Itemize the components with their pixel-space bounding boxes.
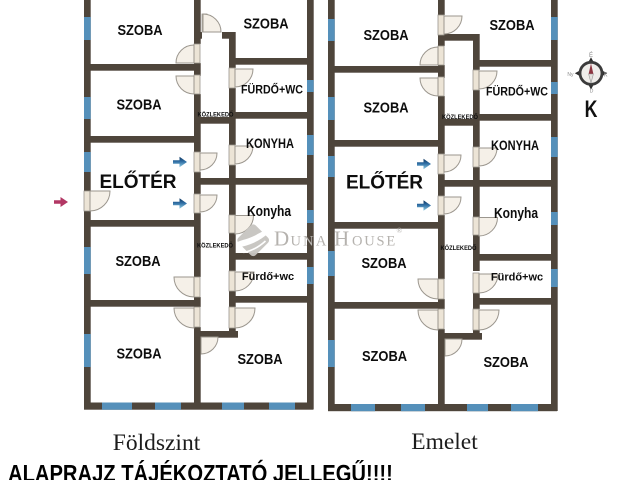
svg-text:ALAPRAJZ TÁJÉKOZTATÓ JELLEGŰ!!: ALAPRAJZ TÁJÉKOZTATÓ JELLEGŰ!!!!	[8, 460, 393, 480]
svg-text:SZOBA: SZOBA	[363, 26, 408, 43]
svg-text:ELŐTÉR: ELŐTÉR	[99, 171, 176, 193]
svg-text:ELŐTÉR: ELŐTÉR	[346, 172, 423, 194]
svg-text:SZOBA: SZOBA	[243, 15, 288, 32]
svg-text:SZOBA: SZOBA	[116, 345, 161, 362]
svg-text:KÖZLEKEDŐ: KÖZLEKEDŐ	[198, 111, 234, 118]
svg-text:Konyha: Konyha	[494, 205, 539, 221]
svg-text:KONYHA: KONYHA	[246, 136, 294, 152]
svg-text:É: É	[589, 52, 593, 59]
svg-text:FÜRDŐ+WC: FÜRDŐ+WC	[241, 83, 303, 96]
svg-text:SZOBA: SZOBA	[362, 347, 407, 364]
svg-text:H: H	[334, 227, 349, 251]
svg-text:KÖZLEKEDŐ: KÖZLEKEDŐ	[197, 242, 233, 249]
svg-text:SZOBA: SZOBA	[116, 96, 161, 113]
svg-text:Ny: Ny	[567, 72, 574, 78]
svg-text:KÖZLEKEDŐ: KÖZLEKEDŐ	[442, 114, 478, 121]
svg-text:Emelet: Emelet	[411, 429, 478, 455]
svg-text:KÖZLEKEDŐ: KÖZLEKEDŐ	[441, 245, 477, 252]
svg-text:SZOBA: SZOBA	[483, 353, 528, 370]
svg-text:OUSE: OUSE	[352, 234, 397, 250]
svg-text:Konyha: Konyha	[247, 203, 292, 219]
svg-text:UNA: UNA	[291, 234, 329, 250]
svg-text:Földszint: Földszint	[113, 430, 201, 456]
svg-text:K: K	[604, 73, 608, 79]
svg-text:SZOBA: SZOBA	[117, 21, 162, 38]
svg-text:KONYHA: KONYHA	[491, 138, 539, 154]
svg-text:FÜRDŐ+WC: FÜRDŐ+WC	[486, 85, 548, 98]
svg-text:SZOBA: SZOBA	[363, 99, 408, 116]
svg-text:SZOBA: SZOBA	[489, 16, 534, 33]
svg-text:SZOBA: SZOBA	[361, 254, 406, 271]
svg-text:Fürdő+wc: Fürdő+wc	[242, 271, 294, 283]
svg-text:SZOBA: SZOBA	[237, 350, 282, 367]
svg-text:D: D	[274, 227, 289, 251]
svg-text:K: K	[585, 97, 598, 123]
svg-text:®: ®	[397, 226, 403, 235]
svg-text:D: D	[590, 89, 594, 95]
svg-text:Fürdő+wc: Fürdő+wc	[491, 272, 543, 284]
svg-text:SZOBA: SZOBA	[115, 252, 160, 269]
